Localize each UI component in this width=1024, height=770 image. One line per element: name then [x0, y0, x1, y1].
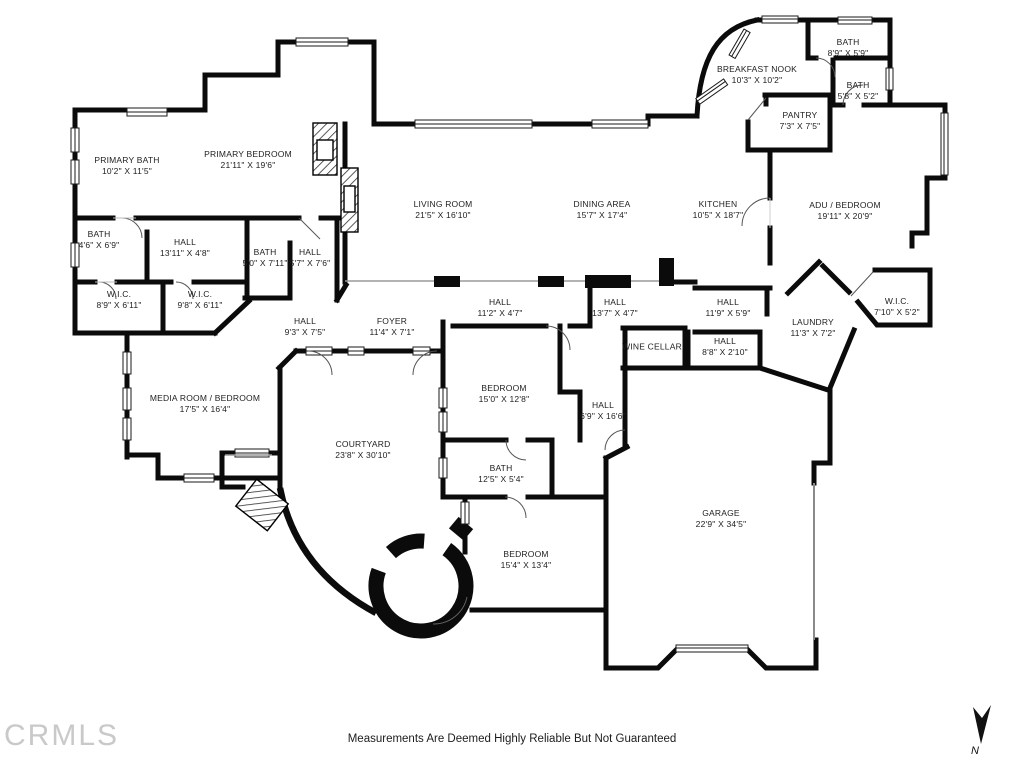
disclaimer-text: Measurements Are Deemed Highly Reliable …: [0, 733, 1024, 745]
compass: N: [950, 695, 1010, 765]
courtyard-curved-wall: [280, 488, 376, 613]
floorplan-drawing: [0, 0, 1024, 768]
north-arrow-icon: [950, 695, 1010, 765]
north-label: N: [971, 745, 979, 757]
floorplan-page: PRIMARY BATH10'2" X 11'5"PRIMARY BEDROOM…: [0, 0, 1024, 768]
turret-ring: [358, 517, 483, 649]
colonnade: [345, 258, 674, 288]
